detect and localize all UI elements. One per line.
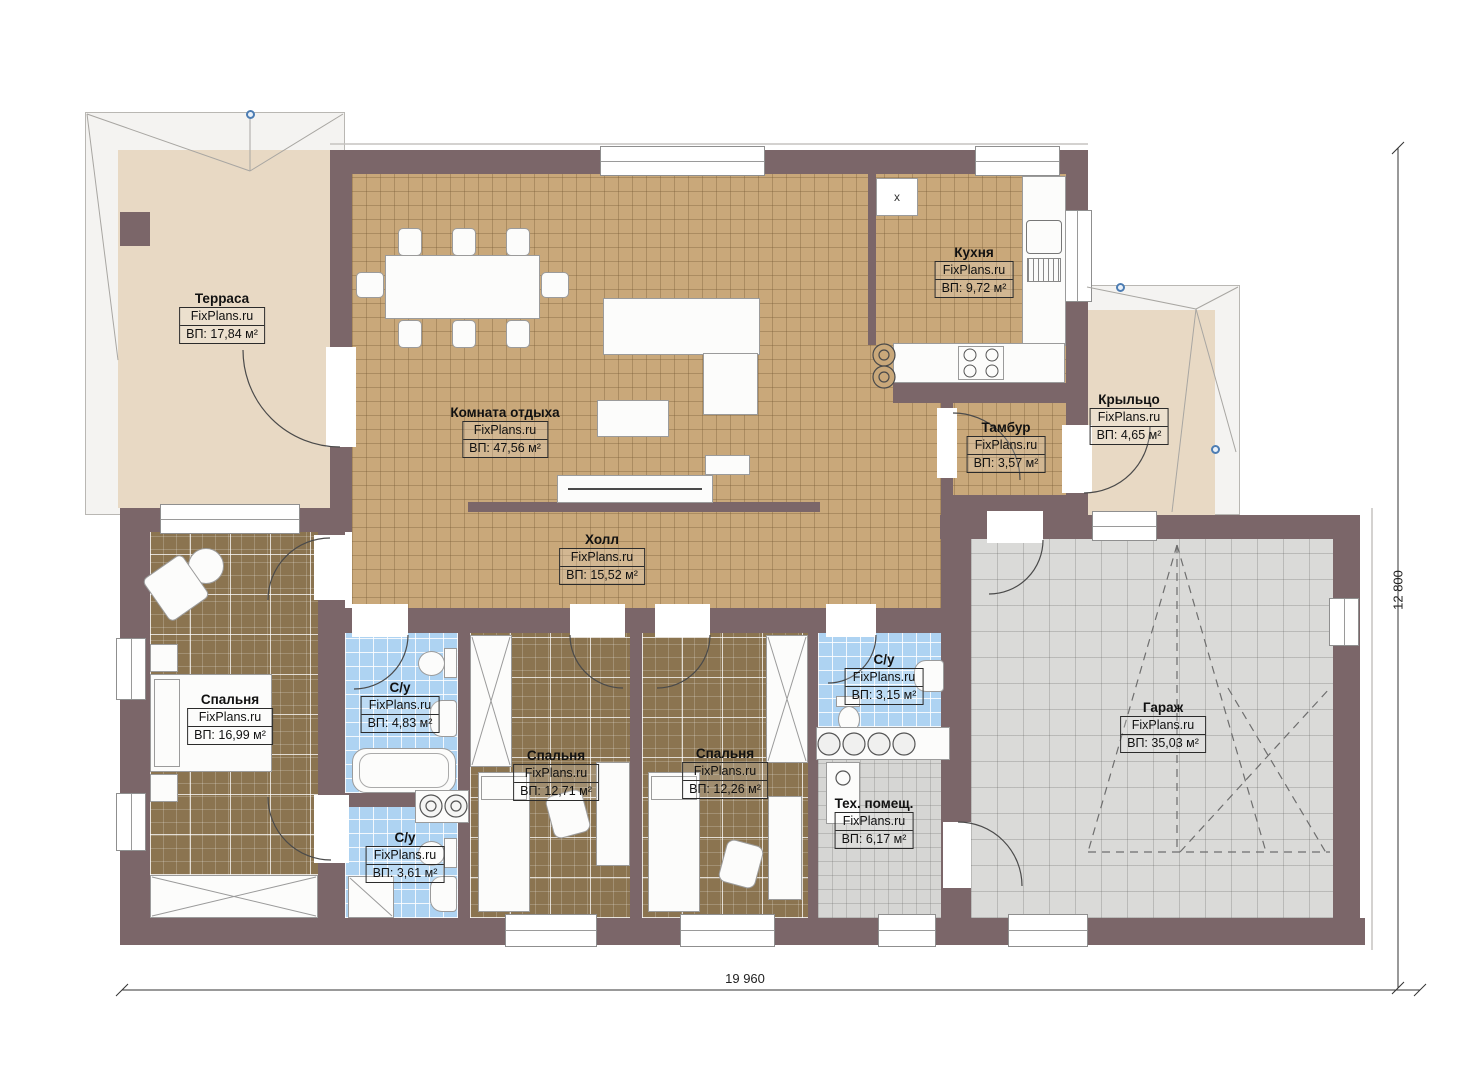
room-info: FixPlans.ru ВП: 3,57 м² [967,436,1046,473]
door-bath3 [826,604,876,637]
wardrobe-bedroom3 [766,635,808,763]
wall-left-main [330,150,352,512]
window-bedroom3-bottom [680,914,775,947]
room-info: FixPlans.ru ВП: 3,61 м² [366,846,445,883]
dining-chair [452,228,476,256]
watermark: FixPlans.ru [836,813,913,830]
room-info: FixPlans.ru ВП: 16,99 м² [187,708,273,745]
toilet-tank [444,648,457,678]
room-info: FixPlans.ru ВП: 17,84 м² [179,307,265,344]
room-info: FixPlans.ru ВП: 4,65 м² [1090,408,1169,445]
dining-chair [506,228,530,256]
kitchen-stove [958,346,1004,380]
window-utility-bottom [878,914,936,947]
wardrobe-bedroom1 [150,875,318,918]
watermark: FixPlans.ru [846,669,923,686]
room-area: ВП: 3,15 м² [846,686,923,704]
washer-box [415,790,469,823]
room-label-garage: Гараж FixPlans.ru ВП: 35,03 м² [1120,700,1206,753]
floor-plan: x [0,0,1474,1080]
window-kitchen-right [1062,210,1092,302]
tv-cabinet [557,475,713,503]
dining-chair [452,320,476,348]
wall-kitchen-partition [868,172,876,345]
room-name: Тамбур [967,420,1046,435]
sofa [603,298,760,355]
room-area: ВП: 35,03 м² [1121,734,1205,752]
nightstand [150,774,178,802]
room-name: С/у [845,652,924,667]
room-label-bath1: С/у FixPlans.ru ВП: 4,83 м² [361,680,440,733]
room-label-vestibule: Тамбур FixPlans.ru ВП: 3,57 м² [967,420,1046,473]
door-utility-garage [943,822,971,888]
room-label-lounge: Комната отдыха FixPlans.ru ВП: 47,56 м² [450,405,559,458]
room-area: ВП: 15,52 м² [560,566,644,584]
window-bedroom1-left-1 [116,638,146,700]
window-bedroom1-left-2 [116,793,146,851]
room-label-bedroom3: Спальня FixPlans.ru ВП: 12,26 м² [682,746,768,799]
dining-chair [356,272,384,298]
door-vestibule-garage [987,511,1043,543]
room-info: FixPlans.ru ВП: 4,83 м² [361,696,440,733]
side-table [705,455,750,475]
window-bedroom1-top [160,504,300,534]
dimension-height: 12 800 [1391,570,1406,610]
room-name: Спальня [682,746,768,761]
room-area: ВП: 12,71 м² [514,782,598,800]
dimension-width: 19 960 [725,971,765,986]
room-label-hall: Холл FixPlans.ru ВП: 15,52 м² [559,532,645,585]
toilet-bowl [418,651,445,676]
door-bedroom3 [655,604,710,637]
room-info: FixPlans.ru ВП: 12,71 м² [513,764,599,801]
room-label-bath2: С/у FixPlans.ru ВП: 3,61 м² [366,830,445,883]
window-living-top [600,146,765,176]
door-bath2 [314,795,349,863]
room-label-bedroom2: Спальня FixPlans.ru ВП: 12,71 м² [513,748,599,801]
room-label-porch: Крыльцо FixPlans.ru ВП: 4,65 м² [1090,392,1169,445]
watermark: FixPlans.ru [180,308,264,325]
roof-marker [1211,445,1220,454]
room-info: FixPlans.ru ВП: 6,17 м² [835,812,914,849]
watermark: FixPlans.ru [1121,717,1205,734]
wall-bath-divider [345,793,420,807]
wall-bedroom3-bath3 [808,633,818,918]
room-name: Гараж [1120,700,1206,715]
laundry-counter [816,727,950,760]
terrace-post [120,212,150,246]
vent-label: x [894,190,900,204]
room-area: ВП: 12,26 м² [683,780,767,798]
kitchen-sink [1026,220,1062,254]
wall-leftwing-left [120,508,150,932]
watermark: FixPlans.ru [367,847,444,864]
room-area: ВП: 17,84 м² [180,325,264,343]
room-info: FixPlans.ru ВП: 47,56 м² [462,421,548,458]
window-kitchen-top [975,146,1060,176]
room-area: ВП: 9,72 м² [936,279,1013,297]
room-area: ВП: 16,99 м² [188,726,272,744]
window-garage-top [1092,511,1157,541]
room-name: Спальня [513,748,599,763]
room-name: Спальня [187,692,273,707]
room-info: FixPlans.ru ВП: 3,15 м² [845,668,924,705]
wall-bedroom2-bedroom3 [630,633,642,918]
room-area: ВП: 47,56 м² [463,439,547,457]
room-area: ВП: 6,17 м² [836,830,913,848]
watermark: FixPlans.ru [463,422,547,439]
window-bedroom2-bottom [505,914,597,947]
bathtub-inner [359,753,449,788]
dining-chair [398,228,422,256]
door-bath1 [352,604,408,637]
garage-gate [1008,914,1088,947]
watermark: FixPlans.ru [188,709,272,726]
room-area: ВП: 3,61 м² [367,864,444,882]
dining-chair [398,320,422,348]
room-name: С/у [366,830,445,845]
room-label-kitchen: Кухня FixPlans.ru ВП: 9,72 м² [935,245,1014,298]
watermark: FixPlans.ru [683,763,767,780]
vent-shaft: x [876,178,918,216]
nightstand [150,644,178,672]
door-vestibule-living [937,408,957,478]
wall-garage-right [1333,515,1360,935]
door-bedroom1 [314,535,349,600]
wall-kitchen-vestibule [893,383,1066,403]
desk [596,762,630,866]
window-garage-right [1329,598,1359,646]
door-bedroom2 [570,604,625,637]
room-area: ВП: 4,83 м² [362,714,439,732]
coffee-table [597,400,669,437]
dining-chair [541,272,569,298]
room-label-utility: Тех. помещ. FixPlans.ru ВП: 6,17 м² [835,796,914,849]
room-area: ВП: 3,57 м² [968,454,1045,472]
watermark: FixPlans.ru [968,437,1045,454]
wall-vestibule-left-b [941,476,953,520]
watermark: FixPlans.ru [936,262,1013,279]
dining-chair [506,320,530,348]
room-name: Комната отдыха [450,405,559,420]
sofa-chaise [703,353,758,415]
room-name: Крыльцо [1090,392,1169,407]
room-info: FixPlans.ru ВП: 15,52 м² [559,548,645,585]
room-label-terrace: Терраса FixPlans.ru ВП: 17,84 м² [179,291,265,344]
toilet-tank [444,838,457,868]
room-info: FixPlans.ru ВП: 12,26 м² [682,762,768,799]
wall-bath-bedroom2 [458,633,470,918]
watermark: FixPlans.ru [560,549,644,566]
watermark: FixPlans.ru [362,697,439,714]
dining-table [385,255,540,319]
watermark: FixPlans.ru [1091,409,1168,426]
room-area: ВП: 4,65 м² [1091,426,1168,444]
room-label-bedroom1: Спальня FixPlans.ru ВП: 16,99 м² [187,692,273,745]
room-name: Холл [559,532,645,547]
bed-pillows [154,679,180,767]
watermark: FixPlans.ru [514,765,598,782]
door-terrace [326,347,356,447]
room-info: FixPlans.ru ВП: 35,03 м² [1120,716,1206,753]
room-name: Терраса [179,291,265,306]
door-vestibule-porch [1062,425,1092,493]
dish-rack [1027,258,1061,282]
wall-tv-partition [468,502,820,512]
roof-marker [1116,283,1125,292]
room-info: FixPlans.ru ВП: 9,72 м² [935,261,1014,298]
desk [768,796,802,900]
roof-marker [246,110,255,119]
room-name: Кухня [935,245,1014,260]
room-label-bath3: С/у FixPlans.ru ВП: 3,15 м² [845,652,924,705]
room-name: Тех. помещ. [835,796,914,811]
wardrobe-bedroom2 [470,635,512,767]
room-name: С/у [361,680,440,695]
